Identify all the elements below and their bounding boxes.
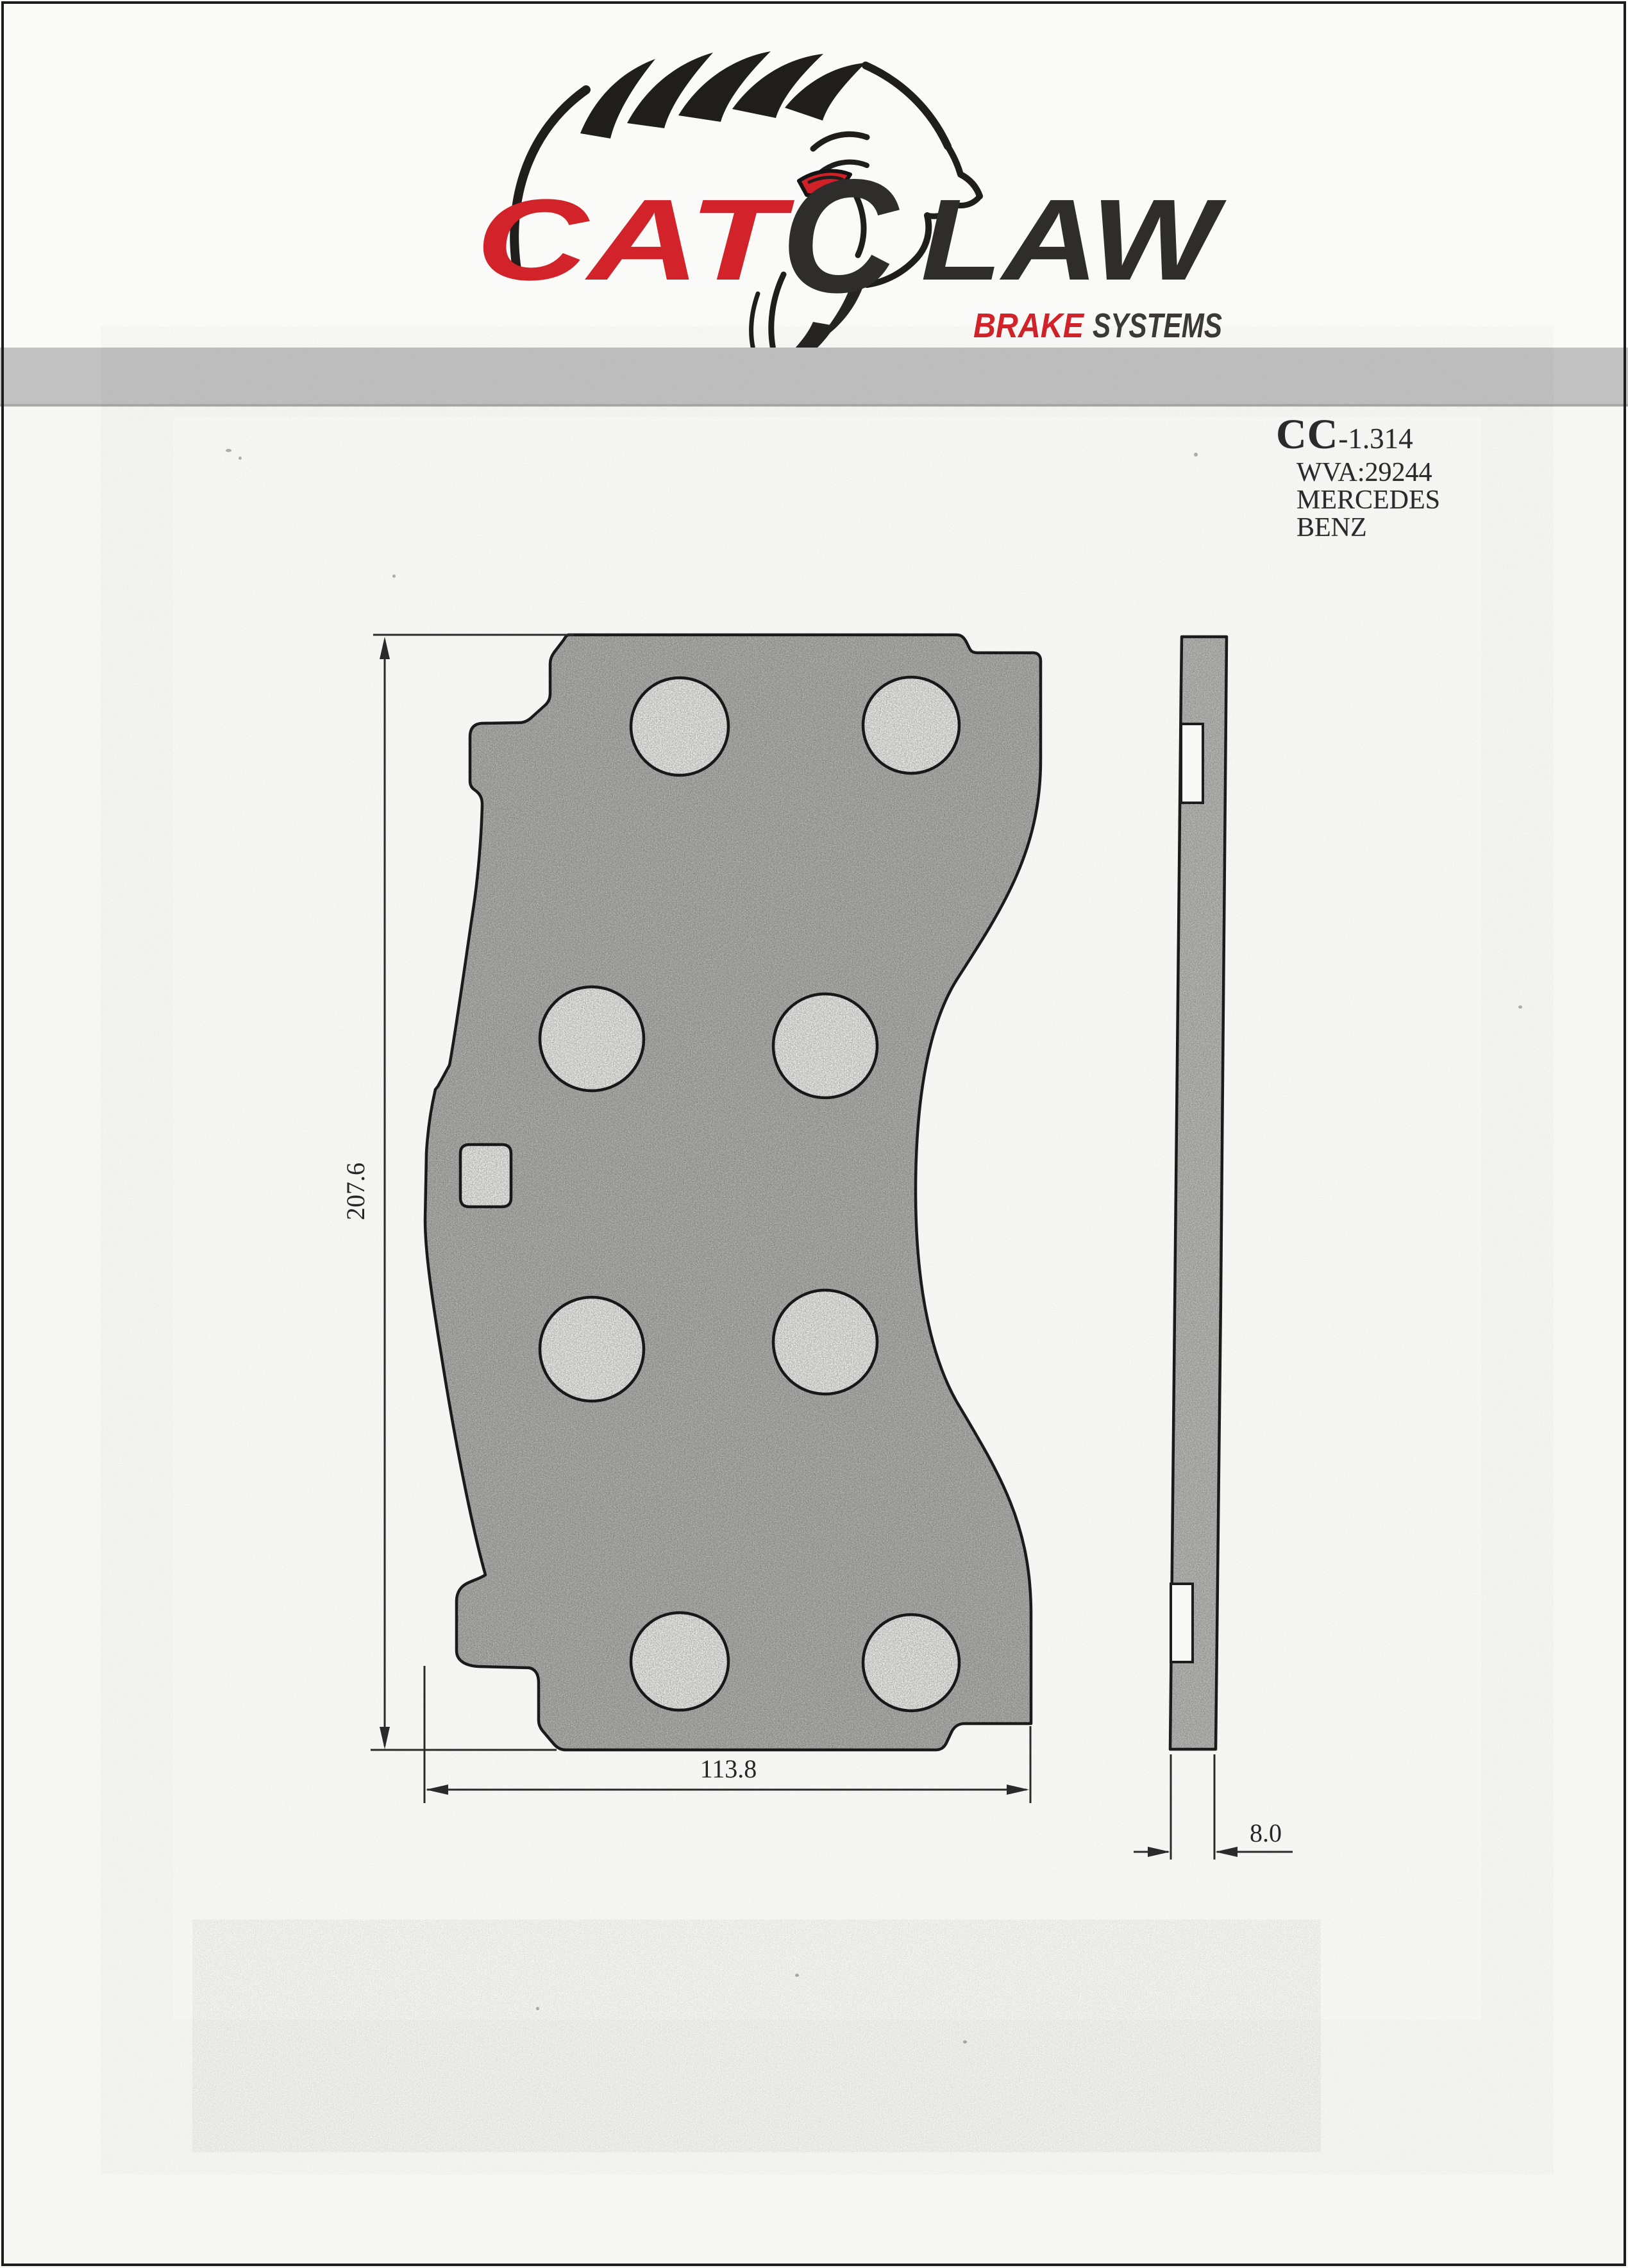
paper-grain-bottom (244, 1930, 1270, 2142)
scan-noise-speck (239, 457, 242, 460)
page: CAT C LAW BRAKE SYSTEMS CC-1.314 WVA:292… (0, 0, 1628, 2268)
part-brand-line2: BENZ (1297, 514, 1440, 542)
part-wva: WVA:29244 (1297, 459, 1440, 487)
part-number-line: CC-1.314 (1276, 410, 1440, 459)
dim-height-label: 207.6 (341, 1163, 370, 1220)
scan-noise-speck (1518, 1005, 1522, 1009)
part-brand-line1: MERCEDES (1297, 487, 1440, 514)
scan-noise-speck (1194, 453, 1198, 457)
scan-noise-speck (536, 2007, 539, 2010)
part-series: CC (1276, 411, 1338, 458)
scan-noise-speck (226, 449, 231, 452)
part-info: CC-1.314 WVA:29244 MERCEDES BENZ (1276, 410, 1440, 542)
side-view-notch-bottom (1171, 1584, 1193, 1662)
scan-noise-speck (795, 1974, 799, 1977)
dim-width-label: 113.8 (700, 1754, 757, 1783)
scan-noise-speck (963, 2040, 967, 2044)
dim-thickness-label: 8.0 (1250, 1819, 1282, 1847)
side-view-notch-top (1181, 724, 1203, 803)
scan-noise-speck (392, 575, 396, 578)
part-code: -1.314 (1338, 423, 1413, 455)
technical-drawing: 207.6 113.8 8.0 (0, 0, 1628, 2268)
